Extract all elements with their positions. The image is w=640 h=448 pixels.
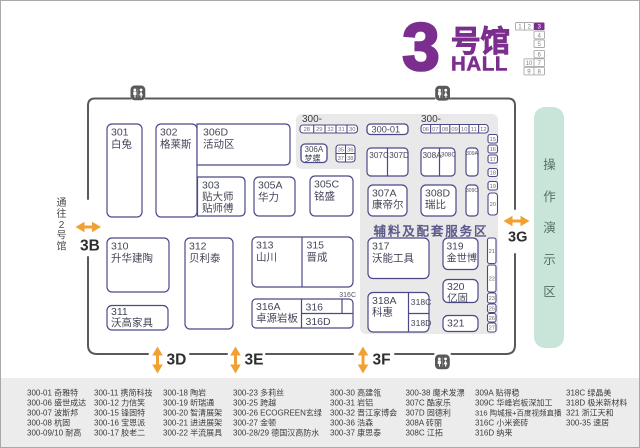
svg-text:318A科惠: 318A科惠 bbox=[372, 295, 397, 319]
svg-text:32: 32 bbox=[327, 127, 333, 133]
svg-text:10: 10 bbox=[461, 127, 467, 133]
svg-text:300-: 300- bbox=[421, 114, 441, 125]
svg-text:2: 2 bbox=[528, 24, 532, 31]
svg-text:4: 4 bbox=[538, 32, 542, 39]
svg-text:8: 8 bbox=[538, 68, 542, 75]
svg-text:307D: 307D bbox=[389, 151, 409, 160]
svg-text:321: 321 bbox=[447, 318, 465, 330]
svg-text:308A: 308A bbox=[423, 151, 443, 160]
svg-text:18: 18 bbox=[490, 171, 496, 177]
svg-text:308C: 308C bbox=[441, 152, 456, 159]
svg-text:316: 316 bbox=[306, 302, 324, 314]
svg-text:27: 27 bbox=[489, 326, 495, 332]
svg-text:19: 19 bbox=[490, 184, 496, 190]
svg-text:3D: 3D bbox=[167, 352, 187, 369]
svg-text:22: 22 bbox=[489, 277, 495, 283]
svg-text:5: 5 bbox=[538, 41, 542, 48]
svg-text:307C: 307C bbox=[369, 151, 389, 160]
svg-text:3E: 3E bbox=[245, 352, 264, 369]
svg-text:316C: 316C bbox=[339, 292, 356, 299]
svg-text:23: 23 bbox=[489, 296, 495, 302]
svg-text:09: 09 bbox=[451, 127, 457, 133]
svg-text:300-: 300- bbox=[302, 114, 322, 125]
svg-text:3F: 3F bbox=[373, 352, 391, 369]
svg-text:3: 3 bbox=[538, 24, 542, 31]
svg-text:21: 21 bbox=[489, 249, 495, 255]
svg-text:305A华力: 305A华力 bbox=[258, 180, 283, 204]
svg-text:12: 12 bbox=[480, 127, 486, 133]
svg-text:35: 35 bbox=[338, 147, 344, 153]
svg-text:10: 10 bbox=[526, 60, 533, 67]
svg-text:20: 20 bbox=[490, 202, 496, 208]
svg-text:11: 11 bbox=[471, 127, 477, 133]
svg-text:29: 29 bbox=[316, 127, 322, 133]
svg-text:3B: 3B bbox=[80, 238, 100, 255]
svg-text:16: 16 bbox=[490, 147, 496, 153]
svg-text:26: 26 bbox=[489, 316, 495, 322]
svg-text:30: 30 bbox=[349, 127, 355, 133]
svg-text:6: 6 bbox=[538, 52, 542, 59]
svg-text:07: 07 bbox=[432, 127, 438, 133]
svg-text:28: 28 bbox=[304, 127, 310, 133]
svg-text:38: 38 bbox=[347, 156, 353, 162]
svg-text:08: 08 bbox=[442, 127, 448, 133]
svg-text:318D: 318D bbox=[411, 318, 432, 328]
svg-text:3: 3 bbox=[402, 10, 439, 85]
svg-text:辅料及配套服务区: 辅料及配套服务区 bbox=[374, 224, 489, 239]
svg-text:300-01: 300-01 bbox=[372, 124, 401, 134]
svg-text:309A: 309A bbox=[466, 151, 478, 157]
svg-text:15: 15 bbox=[490, 137, 496, 143]
svg-text:17: 17 bbox=[490, 157, 496, 163]
svg-text:318C: 318C bbox=[411, 297, 432, 307]
svg-text:36: 36 bbox=[347, 147, 353, 153]
svg-text:25: 25 bbox=[489, 306, 495, 312]
svg-text:06: 06 bbox=[423, 127, 429, 133]
svg-text:7: 7 bbox=[538, 60, 542, 67]
svg-text:3G: 3G bbox=[508, 230, 527, 246]
svg-text:316D: 316D bbox=[306, 316, 332, 328]
svg-text:37: 37 bbox=[338, 156, 344, 162]
svg-text:309C: 309C bbox=[466, 188, 478, 194]
svg-text:HALL: HALL bbox=[451, 53, 508, 76]
svg-text:300-11 携简科技300-12 力信笑300-15 锋固: 300-11 携简科技300-12 力信笑300-15 锋固特300-16 宝恩… bbox=[94, 388, 153, 438]
svg-text:31: 31 bbox=[338, 127, 344, 133]
svg-text:300-01 奇雅特300-06 盛世成达300-07 波斯: 300-01 奇雅特300-06 盛世成达300-07 波斯邦300-08 杭固… bbox=[27, 388, 86, 438]
